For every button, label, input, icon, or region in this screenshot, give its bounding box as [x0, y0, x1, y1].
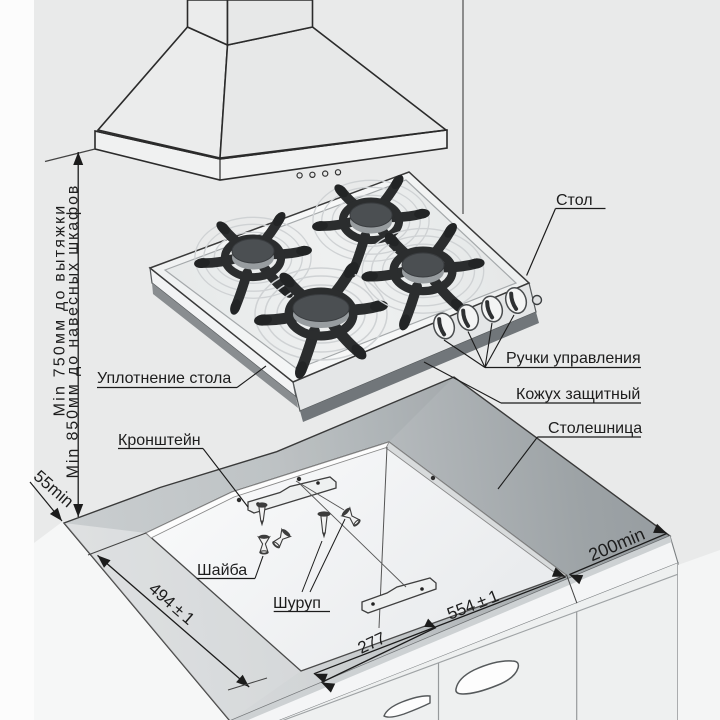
- svg-text:Шайба: Шайба: [197, 562, 247, 579]
- svg-text:Кожух защитный: Кожух защитный: [516, 386, 640, 403]
- svg-text:Шуруп: Шуруп: [273, 595, 321, 612]
- svg-text:Ручки управления: Ручки управления: [506, 350, 641, 367]
- svg-text:Уплотнение стола: Уплотнение стола: [97, 370, 231, 387]
- svg-text:Стол: Стол: [556, 192, 593, 209]
- svg-text:Столешница: Столешница: [548, 420, 642, 437]
- svg-text:Min 850мм до навесных шкафов: Min 850мм до навесных шкафов: [64, 184, 81, 479]
- svg-text:Кронштейн: Кронштейн: [118, 432, 201, 449]
